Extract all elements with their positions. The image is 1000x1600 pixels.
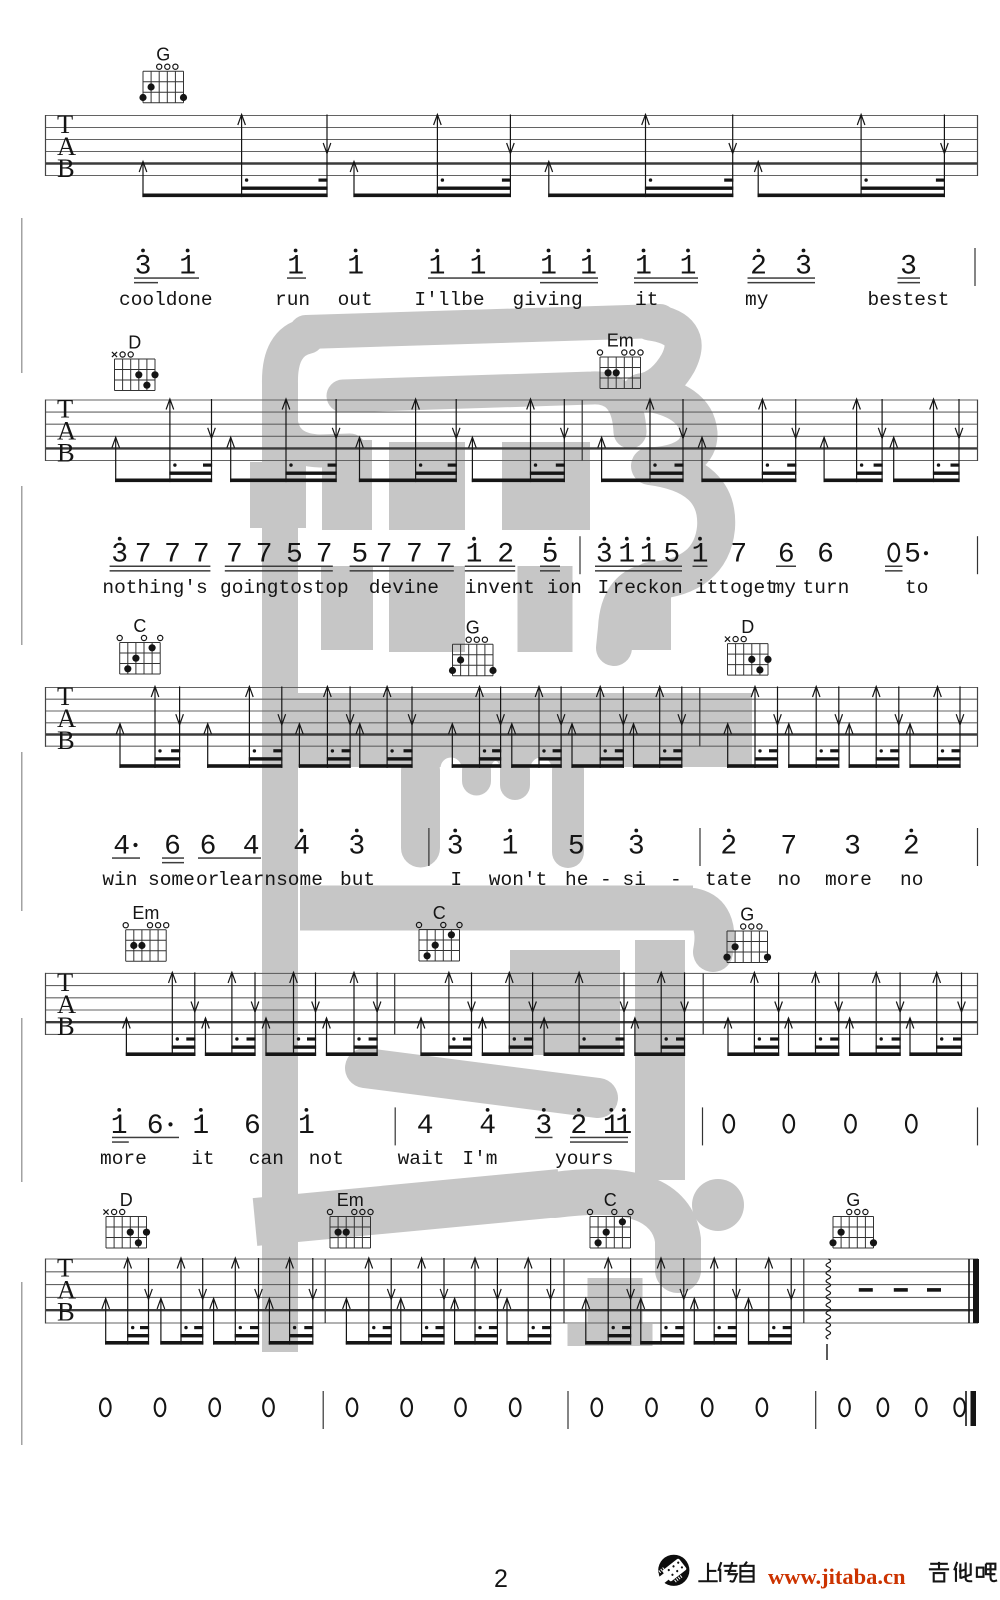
svg-text:4: 4 [479, 1111, 496, 1142]
svg-text:B: B [57, 1011, 75, 1041]
svg-text:out: out [338, 289, 373, 311]
svg-text:G: G [466, 618, 480, 638]
svg-text:to: to [905, 577, 928, 599]
svg-text:1: 1 [347, 252, 364, 283]
svg-text:I'm: I'm [462, 1148, 497, 1170]
svg-text:B: B [57, 1297, 75, 1327]
svg-text:more: more [100, 1148, 147, 1170]
svg-text:C: C [433, 903, 446, 923]
svg-text:2: 2 [720, 832, 737, 863]
svg-text:4: 4 [293, 832, 310, 863]
svg-text:nothing's: nothing's [102, 577, 207, 599]
svg-text:cooldone: cooldone [119, 289, 213, 311]
svg-text:B: B [57, 153, 75, 183]
svg-text:I: I [450, 869, 462, 891]
svg-text:tate: tate [705, 869, 752, 891]
svg-text:I: I [598, 577, 610, 599]
svg-text:not: not [309, 1148, 344, 1170]
svg-text:5: 5 [904, 540, 921, 571]
svg-text:more: more [825, 869, 872, 891]
svg-text:1: 1 [192, 1111, 209, 1142]
svg-text:run: run [275, 289, 310, 311]
svg-text:learnsome: learnsome [218, 869, 323, 891]
svg-text:wait: wait [398, 1148, 445, 1170]
svg-text:Em: Em [337, 1190, 364, 1210]
svg-text:yours: yours [555, 1148, 614, 1170]
svg-text:bestest: bestest [868, 289, 950, 311]
svg-text:3: 3 [447, 832, 464, 863]
svg-text:won't: won't [489, 869, 548, 891]
svg-text:6: 6 [244, 1111, 261, 1142]
svg-text:goingtostop: goingtostop [220, 577, 349, 599]
svg-text:-: - [670, 869, 682, 891]
svg-text:my: my [745, 289, 769, 311]
svg-text:3: 3 [628, 832, 645, 863]
svg-text:invent ion: invent ion [465, 577, 582, 599]
svg-text:but: but [340, 869, 375, 891]
svg-text:C: C [133, 616, 146, 636]
svg-text:4: 4 [417, 1111, 434, 1142]
svg-text:devine: devine [369, 577, 439, 599]
svg-text:Em: Em [607, 331, 634, 351]
svg-text:I'llbe: I'llbe [414, 289, 484, 311]
svg-text:7: 7 [730, 540, 747, 571]
svg-text:turn: turn [803, 577, 850, 599]
svg-text:1: 1 [502, 832, 519, 863]
svg-text:C: C [604, 1190, 617, 1210]
svg-text:my: my [773, 577, 797, 599]
svg-text:ittoget: ittoget [695, 577, 777, 599]
svg-text:www.jitaba.cn: www.jitaba.cn [768, 1564, 906, 1589]
svg-text:can: can [249, 1148, 284, 1170]
svg-text:3: 3 [348, 832, 365, 863]
svg-text:7: 7 [780, 832, 797, 863]
svg-text:reckon: reckon [613, 577, 683, 599]
svg-text:no: no [900, 869, 923, 891]
svg-text:some: some [148, 869, 195, 891]
svg-text:1: 1 [298, 1111, 315, 1142]
svg-text:2: 2 [494, 1565, 508, 1593]
svg-text:G: G [740, 905, 754, 925]
svg-text:it: it [191, 1148, 214, 1170]
svg-text:si: si [623, 869, 646, 891]
svg-text:G: G [846, 1190, 860, 1210]
svg-text:B: B [57, 438, 75, 468]
svg-text:B: B [57, 725, 75, 755]
svg-text:G: G [156, 45, 170, 65]
svg-text:6: 6 [817, 540, 834, 571]
svg-text:win: win [102, 869, 137, 891]
svg-text:Em: Em [132, 903, 159, 923]
svg-text:no: no [778, 869, 801, 891]
svg-text:-: - [600, 869, 612, 891]
svg-text:2: 2 [903, 832, 920, 863]
svg-text:D: D [741, 617, 754, 637]
svg-text:D: D [128, 333, 141, 353]
svg-text:he: he [565, 869, 588, 891]
svg-text:giving: giving [513, 289, 583, 311]
svg-text:D: D [120, 1190, 133, 1210]
svg-text:or: or [196, 869, 219, 891]
svg-text:5: 5 [568, 832, 585, 863]
svg-text:3: 3 [844, 832, 861, 863]
svg-text:it: it [635, 289, 658, 311]
